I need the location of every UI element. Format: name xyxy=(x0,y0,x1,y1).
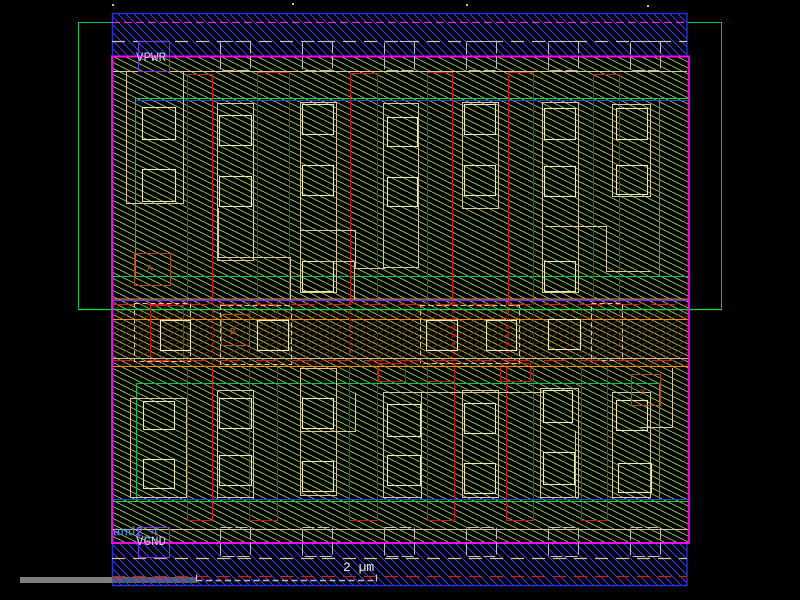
svg-text:X: X xyxy=(640,387,646,398)
svg-text:A: A xyxy=(147,263,153,274)
svg-text:2 µm: 2 µm xyxy=(343,560,374,575)
svg-text:and2_4: and2_4 xyxy=(113,526,158,540)
svg-text:B: B xyxy=(230,326,236,337)
svg-text:VPWR: VPWR xyxy=(136,51,167,65)
